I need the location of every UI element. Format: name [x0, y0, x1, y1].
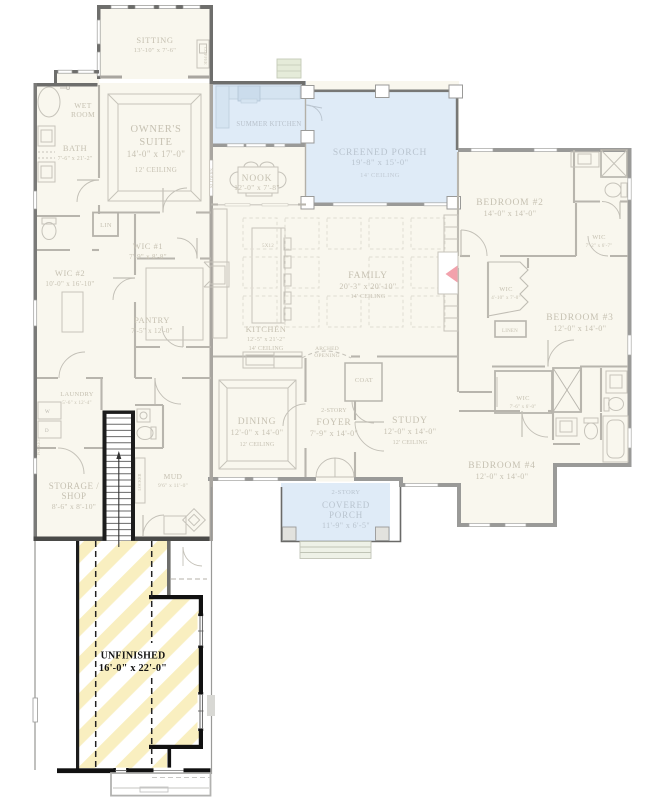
- svg-text:19'-8" x 15'-0": 19'-8" x 15'-0": [351, 157, 408, 167]
- svg-text:POCKET: POCKET: [36, 438, 41, 455]
- svg-text:14' CEILING: 14' CEILING: [360, 172, 400, 179]
- svg-text:11'-9" x 6'-5": 11'-9" x 6'-5": [322, 521, 370, 530]
- svg-text:BEDROOM #4: BEDROOM #4: [468, 461, 535, 471]
- svg-text:7'-9" x 14'-0": 7'-9" x 14'-0": [310, 429, 358, 438]
- svg-text:D: D: [45, 429, 49, 434]
- svg-text:STUDY: STUDY: [392, 416, 428, 426]
- svg-text:PORCH: PORCH: [329, 510, 363, 520]
- svg-text:LIN: LIN: [100, 222, 112, 229]
- svg-text:MUD: MUD: [164, 472, 183, 481]
- svg-text:BEDROOM #2: BEDROOM #2: [476, 198, 543, 208]
- svg-text:ROOM: ROOM: [71, 110, 95, 119]
- svg-text:SUITE: SUITE: [139, 137, 172, 148]
- svg-text:4'-10" x 7'-0": 4'-10" x 7'-0": [491, 296, 521, 301]
- svg-text:10'-0" x 16'-10": 10'-0" x 16'-10": [45, 280, 94, 288]
- svg-text:7'-9" x 8'-8": 7'-9" x 8'-8": [129, 253, 167, 261]
- svg-text:7'-5" x 12'-0": 7'-5" x 12'-0": [131, 327, 173, 335]
- svg-text:14'-0" x 17'-0": 14'-0" x 17'-0": [127, 149, 186, 159]
- svg-text:W: W: [45, 410, 50, 415]
- svg-text:9'6" x 11'-0": 9'6" x 11'-0": [158, 483, 188, 489]
- svg-text:12' CEILING: 12' CEILING: [135, 166, 177, 174]
- svg-text:7'-6" x 6'-0": 7'-6" x 6'-0": [510, 405, 537, 410]
- svg-text:7'-6" x 21'-2": 7'-6" x 21'-2": [58, 156, 93, 162]
- svg-text:5'-6" x 12'-4": 5'-6" x 12'-4": [62, 401, 92, 406]
- svg-text:14' CEILING: 14' CEILING: [249, 346, 284, 352]
- svg-text:12' CEILING: 12' CEILING: [240, 442, 275, 448]
- svg-text:KITCHEN: KITCHEN: [246, 324, 287, 334]
- svg-text:WET: WET: [74, 101, 91, 110]
- svg-text:12'-0" x 7'-8": 12'-0" x 7'-8": [234, 183, 280, 192]
- svg-text:FOYER: FOYER: [316, 418, 351, 428]
- svg-text:12'-5" x 21'-2": 12'-5" x 21'-2": [247, 337, 285, 343]
- svg-text:12'-0" x 14'-0": 12'-0" x 14'-0": [384, 427, 437, 436]
- svg-text:7'-2" x 6'-7": 7'-2" x 6'-7": [586, 244, 613, 249]
- svg-text:SHOP: SHOP: [61, 491, 86, 501]
- svg-text:12'-0" x 14'-0": 12'-0" x 14'-0": [554, 324, 607, 333]
- svg-text:WIC: WIC: [516, 395, 530, 402]
- svg-text:14'-0" x 14'-0": 14'-0" x 14'-0": [484, 209, 537, 218]
- svg-text:LOCKER: LOCKER: [137, 473, 142, 490]
- svg-text:14' CEILING: 14' CEILING: [351, 294, 386, 300]
- svg-text:OWNER'S: OWNER'S: [130, 124, 181, 135]
- svg-text:COVERED: COVERED: [322, 500, 370, 510]
- svg-text:13'-10" x 7'-6": 13'-10" x 7'-6": [134, 47, 177, 54]
- svg-text:COFFEE: COFFEE: [203, 47, 208, 65]
- svg-text:PANTRY: PANTRY: [134, 315, 170, 325]
- svg-text:WIC #2: WIC #2: [55, 268, 85, 278]
- svg-text:WIC #1: WIC #1: [133, 241, 163, 251]
- svg-text:16'-0" x 22'-0": 16'-0" x 22'-0": [99, 663, 167, 674]
- svg-text:20'-3" x 20'-10": 20'-3" x 20'-10": [339, 282, 396, 291]
- svg-text:BATH: BATH: [63, 143, 87, 153]
- svg-text:12'-0" x 14'-0": 12'-0" x 14'-0": [231, 428, 284, 437]
- svg-text:2-STORY: 2-STORY: [321, 408, 347, 414]
- svg-text:SUMMER KITCHEN: SUMMER KITCHEN: [236, 121, 301, 128]
- svg-text:LAUNDRY: LAUNDRY: [60, 391, 94, 398]
- svg-text:FAMILY: FAMILY: [348, 271, 388, 281]
- svg-text:WIC: WIC: [592, 234, 606, 241]
- svg-text:UNFINISHED: UNFINISHED: [101, 651, 166, 662]
- svg-text:STORAGE /: STORAGE /: [49, 481, 100, 491]
- svg-text:12' CEILING: 12' CEILING: [393, 440, 428, 446]
- svg-text:ARCHED: ARCHED: [315, 346, 339, 352]
- svg-text:12'-0" x 14'-0": 12'-0" x 14'-0": [476, 472, 529, 481]
- svg-text:LINEN: LINEN: [502, 329, 518, 334]
- svg-text:WIC: WIC: [499, 286, 513, 293]
- svg-text:COAT: COAT: [355, 377, 373, 384]
- svg-text:OPENING: OPENING: [314, 353, 340, 359]
- svg-text:2-STORY: 2-STORY: [331, 489, 360, 496]
- svg-text:SITTING: SITTING: [136, 35, 173, 45]
- svg-text:BEDROOM #3: BEDROOM #3: [546, 313, 613, 323]
- svg-text:DINING: DINING: [238, 417, 277, 427]
- svg-text:SLIDERS: SLIDERS: [209, 168, 214, 188]
- svg-text:5X12: 5X12: [262, 244, 274, 249]
- svg-text:8'-6" x 8'-10": 8'-6" x 8'-10": [52, 502, 96, 511]
